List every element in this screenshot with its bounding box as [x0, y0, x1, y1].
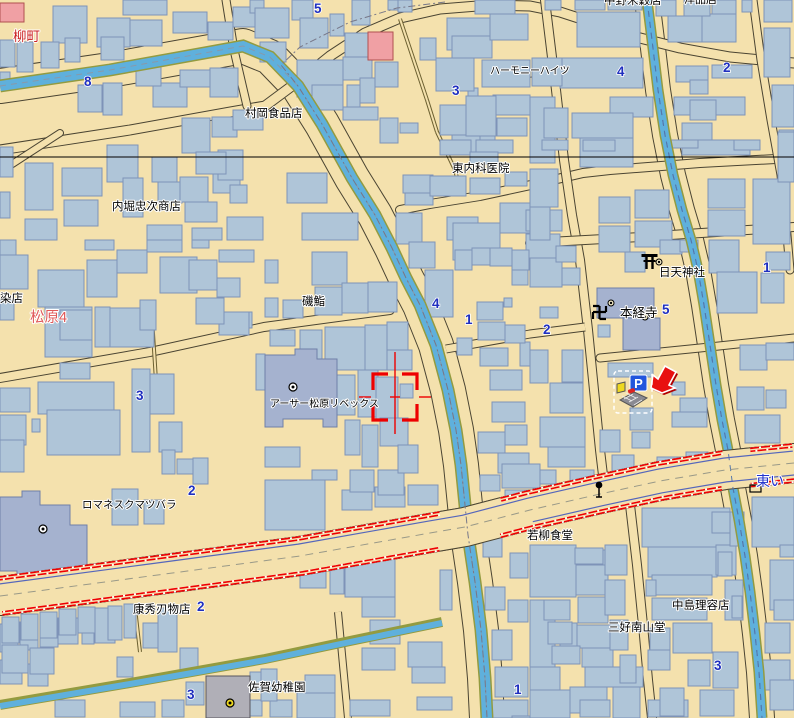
svg-text:2: 2 — [723, 60, 731, 75]
svg-text:中野米穀店: 中野米穀店 — [604, 0, 662, 7]
svg-text:洋品店: 洋品店 — [684, 0, 717, 6]
svg-text:東い: 東い — [756, 473, 784, 489]
svg-text:8: 8 — [84, 74, 92, 89]
svg-text:磯鮨: 磯鮨 — [302, 294, 325, 308]
svg-text:三好南山堂: 三好南山堂 — [608, 620, 666, 634]
svg-text:日天神社: 日天神社 — [659, 265, 705, 279]
svg-text:ロマネスクマツバラ: ロマネスクマツバラ — [82, 499, 177, 511]
svg-text:2: 2 — [188, 483, 196, 498]
svg-text:アーサー松原リベックス: アーサー松原リベックス — [270, 397, 379, 410]
svg-text:東内科医院: 東内科医院 — [452, 161, 510, 175]
svg-text:4: 4 — [432, 296, 440, 311]
svg-text:村岡食品店: 村岡食品店 — [245, 106, 303, 120]
svg-text:4: 4 — [617, 64, 625, 79]
svg-text:5: 5 — [314, 1, 322, 16]
svg-text:本経寺: 本経寺 — [620, 306, 658, 320]
svg-text:3: 3 — [136, 388, 144, 403]
svg-text:内堀忠次商店: 内堀忠次商店 — [112, 199, 181, 213]
svg-text:1: 1 — [465, 312, 473, 327]
svg-text:中島理容店: 中島理容店 — [672, 598, 730, 612]
svg-text:1: 1 — [763, 260, 771, 275]
svg-text:1: 1 — [514, 682, 522, 697]
svg-text:5: 5 — [662, 302, 670, 317]
svg-text:佐賀幼稚園: 佐賀幼稚園 — [248, 680, 306, 694]
svg-text:3: 3 — [452, 83, 460, 98]
svg-text:3: 3 — [714, 658, 722, 673]
svg-text:2: 2 — [197, 599, 205, 614]
svg-text:康秀刃物店: 康秀刃物店 — [133, 602, 191, 616]
svg-text:松原4: 松原4 — [30, 309, 67, 326]
svg-text:2: 2 — [543, 322, 551, 337]
svg-text:若柳食堂: 若柳食堂 — [527, 528, 573, 542]
svg-text:柳町: 柳町 — [13, 29, 40, 44]
svg-text:染店: 染店 — [0, 291, 23, 305]
svg-text:3: 3 — [187, 687, 195, 702]
svg-text:P: P — [634, 376, 643, 391]
svg-text:ハーモニーハイツ: ハーモニーハイツ — [490, 66, 570, 77]
